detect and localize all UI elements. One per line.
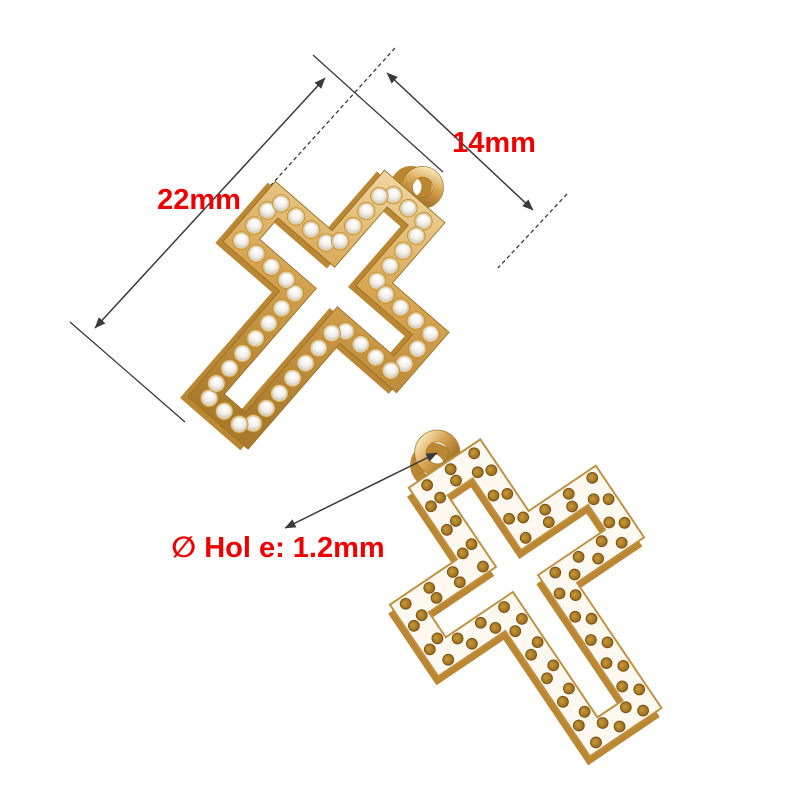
product-photo: 22mm 14mm ∅ Hol e: 1.2mm <box>0 0 800 800</box>
length-extension-line-bottom <box>70 322 185 422</box>
product-annotation-canvas: 22mm 14mm ∅ Hol e: 1.2mm <box>0 0 800 800</box>
back-cross-body <box>342 394 729 800</box>
length-label: 22mm <box>157 184 241 216</box>
width-extension-line-right <box>498 194 567 268</box>
back-cross-depth-edge <box>324 379 727 800</box>
back-cross-charm <box>316 365 732 800</box>
width-label: 14mm <box>452 127 536 159</box>
hole-annotation: ∅ Hol e: 1.2mm <box>171 453 437 564</box>
hole-label: ∅ Hol e: 1.2mm <box>171 532 384 564</box>
length-extension-line-top <box>313 55 443 172</box>
